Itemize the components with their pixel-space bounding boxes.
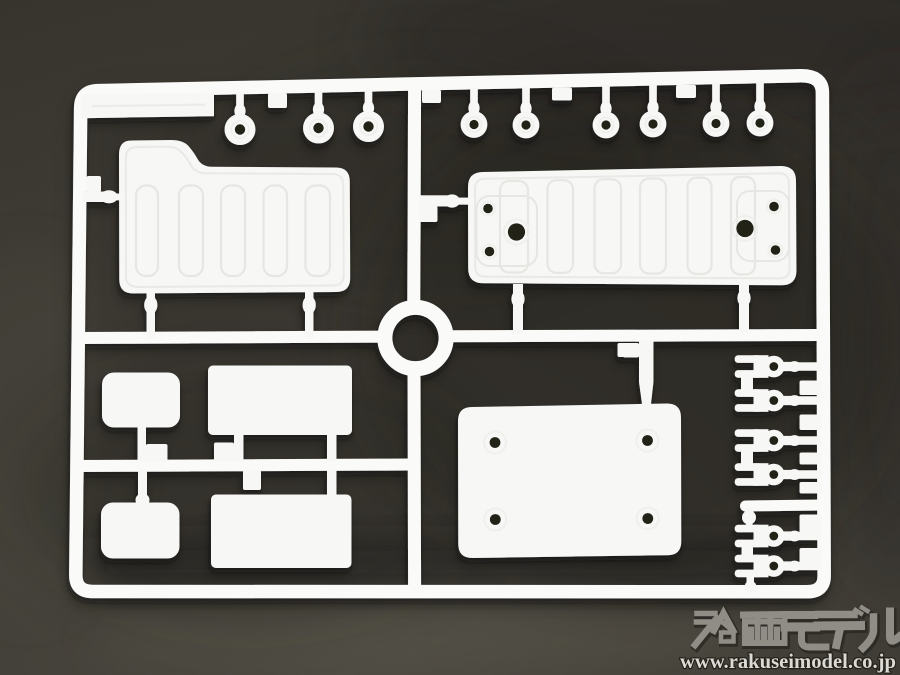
svg-text:www.rakuseimodel.co.jp: www.rakuseimodel.co.jp — [680, 649, 896, 673]
